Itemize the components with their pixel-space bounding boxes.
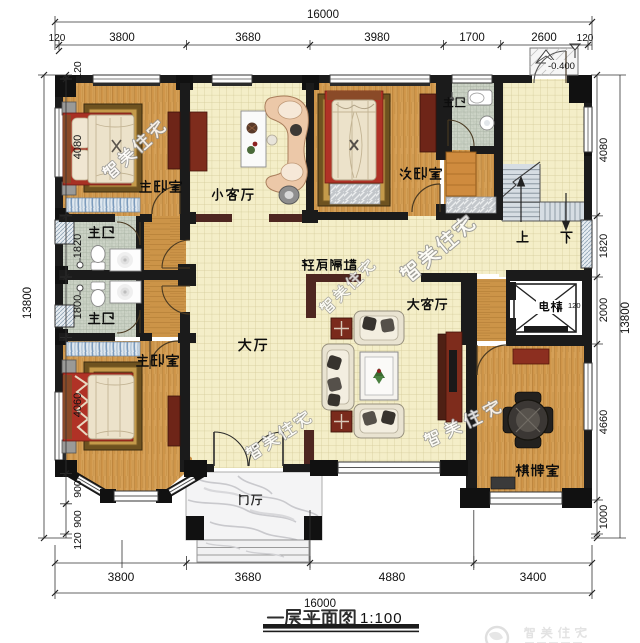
svg-text:3680: 3680 — [235, 32, 261, 44]
svg-text:2000: 2000 — [598, 298, 610, 322]
svg-text:1000: 1000 — [598, 505, 610, 529]
svg-text:16000: 16000 — [307, 9, 339, 21]
svg-text:900: 900 — [72, 480, 84, 498]
svg-text:4060: 4060 — [72, 393, 84, 417]
svg-text:4080: 4080 — [598, 138, 610, 162]
svg-text:120: 120 — [568, 301, 581, 310]
svg-text:1820: 1820 — [72, 234, 84, 258]
svg-text:120: 120 — [72, 532, 84, 550]
svg-text:120: 120 — [577, 33, 594, 44]
svg-text:16000: 16000 — [304, 598, 336, 610]
svg-text:3400: 3400 — [520, 570, 547, 584]
svg-text:1820: 1820 — [598, 234, 610, 258]
svg-text:-0.400: -0.400 — [548, 61, 575, 72]
svg-text:900: 900 — [72, 510, 84, 528]
svg-text:3680: 3680 — [235, 570, 262, 584]
svg-text:4080: 4080 — [72, 135, 84, 159]
svg-text:120: 120 — [49, 33, 66, 44]
svg-text:4880: 4880 — [379, 570, 406, 584]
svg-text:3980: 3980 — [364, 32, 390, 44]
svg-text:1700: 1700 — [459, 32, 485, 44]
svg-text:120: 120 — [72, 61, 84, 79]
svg-text:3800: 3800 — [109, 32, 135, 44]
svg-text:2600: 2600 — [531, 32, 557, 44]
svg-text:13800: 13800 — [620, 302, 632, 334]
svg-text:1800: 1800 — [72, 295, 84, 319]
svg-text:3800: 3800 — [108, 570, 135, 584]
svg-text:4660: 4660 — [598, 410, 610, 434]
svg-text:13800: 13800 — [22, 287, 34, 319]
